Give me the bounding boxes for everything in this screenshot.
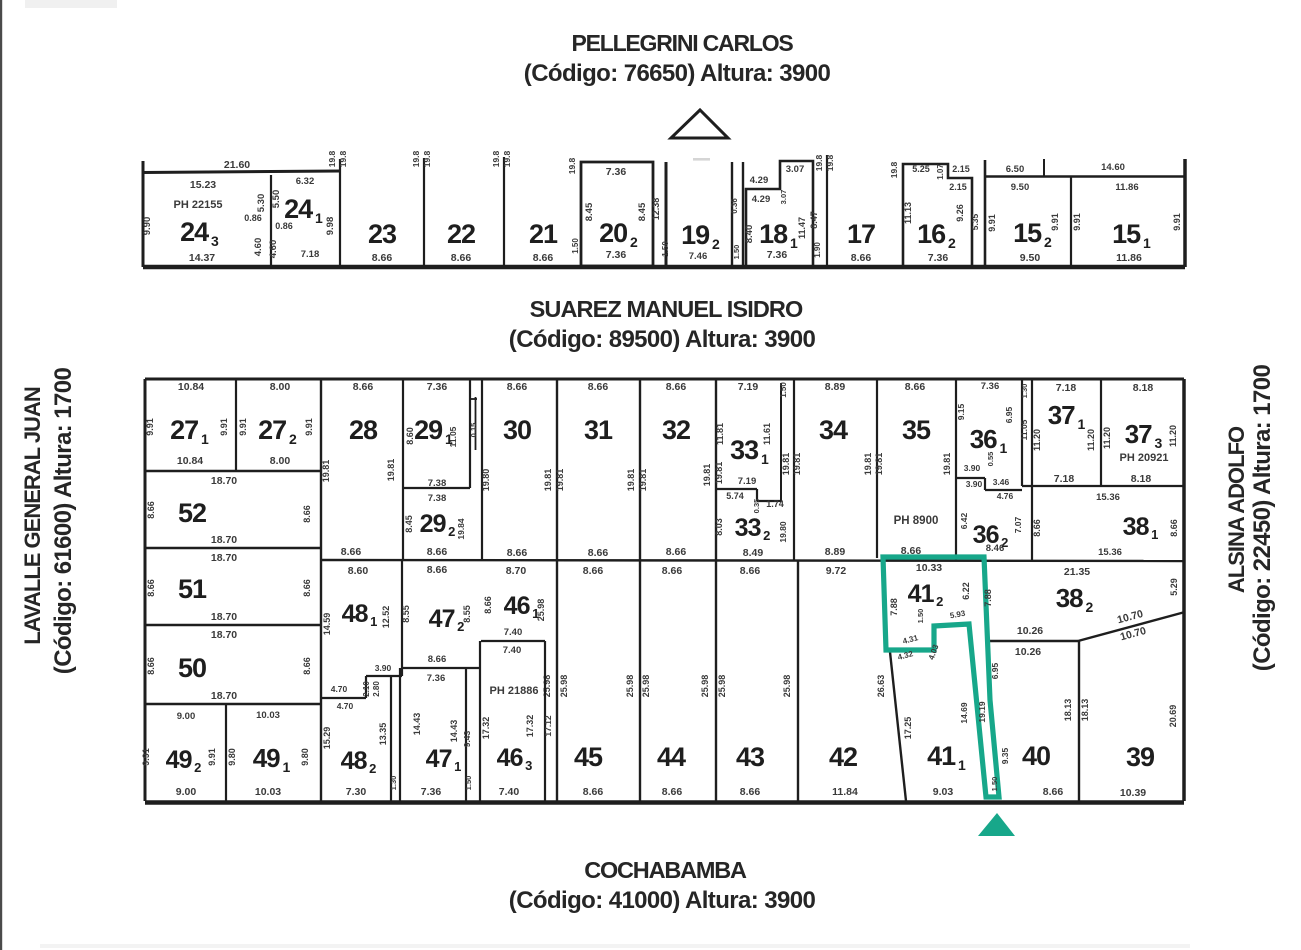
svg-text:5.74: 5.74	[726, 491, 744, 501]
svg-text:4.29: 4.29	[752, 194, 771, 205]
svg-text:LAVALLE GENERAL JUAN: LAVALLE GENERAL JUAN	[20, 387, 45, 645]
svg-text:1.50: 1.50	[916, 609, 925, 624]
svg-text:40: 40	[1022, 741, 1050, 771]
svg-text:9.50: 9.50	[1020, 252, 1041, 264]
svg-text:2.15: 2.15	[952, 164, 970, 174]
svg-text:6.32: 6.32	[296, 176, 315, 187]
svg-text:0.36: 0.36	[730, 198, 739, 214]
svg-text:9.35: 9.35	[1000, 747, 1010, 764]
svg-text:17.12: 17.12	[543, 715, 553, 737]
svg-text:2.80: 2.80	[372, 681, 381, 697]
svg-text:17: 17	[847, 219, 875, 249]
svg-text:19.81: 19.81	[874, 453, 884, 476]
svg-text:10.84: 10.84	[178, 381, 204, 393]
svg-text:9.91: 9.91	[238, 418, 248, 436]
svg-text:3.90: 3.90	[375, 663, 392, 673]
svg-text:8.55: 8.55	[462, 605, 472, 623]
svg-text:7.19: 7.19	[738, 381, 759, 393]
svg-text:15.36: 15.36	[1098, 547, 1122, 558]
svg-text:11.20: 11.20	[1168, 425, 1178, 447]
svg-text:19.81: 19.81	[714, 462, 724, 485]
svg-text:19.8: 19.8	[567, 157, 577, 174]
svg-text:26.63: 26.63	[876, 675, 886, 698]
svg-text:19.81: 19.81	[386, 459, 396, 482]
svg-text:19.8: 19.8	[411, 150, 421, 167]
svg-text:11.20: 11.20	[1086, 429, 1096, 451]
svg-text:18.70: 18.70	[211, 611, 237, 623]
svg-text:1.50: 1.50	[990, 777, 999, 792]
svg-text:19.8: 19.8	[491, 150, 501, 167]
svg-text:10.03: 10.03	[256, 710, 280, 721]
svg-text:4.70: 4.70	[337, 701, 354, 711]
svg-text:8.47: 8.47	[809, 211, 819, 229]
svg-text:4.60: 4.60	[268, 240, 279, 259]
svg-text:9.91: 9.91	[145, 418, 155, 436]
svg-text:0.86: 0.86	[244, 213, 262, 223]
svg-text:34: 34	[819, 415, 848, 445]
svg-text:8.66: 8.66	[427, 546, 448, 558]
svg-text:19.81: 19.81	[543, 469, 553, 492]
svg-text:4.60: 4.60	[253, 238, 264, 257]
svg-text:14.59: 14.59	[322, 613, 332, 636]
svg-text:19.8: 19.8	[338, 150, 348, 167]
svg-text:8.66: 8.66	[146, 501, 156, 519]
svg-text:19.8: 19.8	[422, 150, 432, 167]
svg-text:1.50: 1.50	[571, 238, 580, 254]
svg-text:19.81: 19.81	[942, 453, 952, 476]
svg-text:28: 28	[349, 415, 378, 445]
svg-text:4.76: 4.76	[997, 491, 1014, 501]
svg-text:8.00: 8.00	[270, 455, 291, 467]
svg-text:8.66: 8.66	[740, 786, 761, 798]
svg-text:8.45: 8.45	[584, 202, 595, 221]
svg-text:8.66: 8.66	[1169, 519, 1179, 537]
svg-text:19.81: 19.81	[792, 453, 802, 476]
svg-text:5.35: 5.35	[970, 213, 980, 230]
svg-text:1.30: 1.30	[1020, 384, 1029, 399]
svg-text:21: 21	[529, 219, 558, 249]
svg-text:COCHABAMBA: COCHABAMBA	[584, 857, 747, 883]
svg-text:7.36: 7.36	[427, 673, 446, 684]
svg-text:2.10: 2.10	[362, 681, 371, 697]
svg-text:(Código: 76650) Altura: 3900: (Código: 76650) Altura: 3900	[524, 60, 831, 87]
svg-text:35: 35	[902, 415, 931, 445]
svg-text:6.95: 6.95	[990, 662, 1000, 679]
svg-text:6.95: 6.95	[1004, 406, 1014, 423]
svg-text:5.30: 5.30	[256, 194, 267, 213]
svg-text:21.35: 21.35	[1064, 566, 1090, 578]
svg-text:52: 52	[178, 498, 206, 528]
svg-text:1.50: 1.50	[779, 382, 788, 398]
svg-text:19.81: 19.81	[781, 453, 791, 476]
svg-text:7.36: 7.36	[421, 786, 442, 798]
svg-text:9.00: 9.00	[176, 786, 197, 798]
svg-text:8.66: 8.66	[662, 786, 683, 798]
svg-text:PH 21886: PH 21886	[490, 685, 539, 697]
svg-text:23: 23	[368, 219, 397, 249]
svg-text:11.05: 11.05	[448, 426, 458, 447]
svg-text:1.30: 1.30	[389, 776, 398, 791]
svg-text:8.66: 8.66	[146, 579, 156, 597]
svg-text:9.91: 9.91	[304, 418, 314, 436]
svg-text:8.45: 8.45	[637, 202, 648, 221]
svg-text:8.66: 8.66	[851, 252, 872, 264]
svg-text:1.50: 1.50	[732, 245, 741, 260]
svg-text:9.26: 9.26	[955, 204, 965, 222]
svg-text:8.49: 8.49	[743, 547, 764, 559]
svg-text:PH 22155: PH 22155	[174, 199, 223, 211]
svg-text:39: 39	[1126, 742, 1155, 772]
svg-text:42: 42	[829, 742, 857, 772]
svg-text:9.91: 9.91	[987, 214, 997, 232]
svg-text:8.66: 8.66	[372, 252, 393, 264]
svg-text:8.66: 8.66	[588, 547, 609, 559]
svg-text:14.43: 14.43	[449, 720, 459, 743]
svg-text:10.03: 10.03	[255, 786, 281, 798]
svg-text:9.91: 9.91	[1172, 213, 1182, 231]
svg-text:5.29: 5.29	[1169, 578, 1179, 596]
svg-text:17.32: 17.32	[481, 717, 491, 740]
svg-text:8.89: 8.89	[825, 381, 846, 393]
svg-text:8.66: 8.66	[483, 596, 493, 614]
svg-text:9.91: 9.91	[1050, 213, 1060, 231]
svg-text:50: 50	[178, 653, 206, 683]
svg-text:11.86: 11.86	[1116, 252, 1142, 264]
svg-text:1.90: 1.90	[813, 242, 822, 258]
svg-text:9.91: 9.91	[207, 748, 217, 766]
svg-text:15.29: 15.29	[322, 727, 332, 750]
svg-text:25.98: 25.98	[717, 675, 727, 698]
svg-text:3.90: 3.90	[966, 479, 983, 489]
svg-text:(Código: 41000) Altura: 3900: (Código: 41000) Altura: 3900	[509, 887, 816, 914]
svg-text:7.19: 7.19	[738, 476, 757, 487]
svg-text:7.40: 7.40	[503, 645, 522, 656]
svg-text:8.66: 8.66	[905, 381, 926, 393]
svg-text:9.43: 9.43	[462, 730, 472, 747]
svg-text:19.8: 19.8	[327, 150, 337, 167]
svg-text:11.20: 11.20	[1032, 429, 1042, 451]
svg-text:6.50: 6.50	[1006, 164, 1025, 175]
svg-text:14.69: 14.69	[959, 702, 969, 724]
svg-text:6.42: 6.42	[959, 512, 969, 529]
svg-text:6.22: 6.22	[961, 582, 971, 600]
svg-text:51: 51	[178, 574, 207, 604]
svg-text:9.15: 9.15	[956, 403, 966, 420]
svg-text:8.66: 8.66	[533, 252, 554, 264]
svg-text:7.46: 7.46	[689, 251, 708, 262]
svg-text:8.18: 8.18	[1131, 473, 1152, 485]
svg-text:7.38: 7.38	[428, 493, 447, 504]
svg-text:7.36: 7.36	[606, 249, 627, 261]
svg-text:25.98: 25.98	[641, 675, 651, 698]
svg-text:25.98: 25.98	[625, 675, 635, 698]
svg-text:8.66: 8.66	[302, 505, 312, 523]
svg-text:(Código: 89500) Altura: 3900: (Código: 89500) Altura: 3900	[509, 326, 816, 353]
svg-text:7.18: 7.18	[1054, 473, 1075, 485]
svg-text:8.45: 8.45	[404, 515, 414, 533]
svg-text:18.70: 18.70	[211, 534, 237, 546]
svg-text:11.47: 11.47	[797, 217, 807, 239]
svg-text:9.98: 9.98	[325, 217, 336, 236]
svg-text:30: 30	[503, 415, 531, 445]
svg-text:8.89: 8.89	[825, 546, 846, 558]
svg-text:8.60: 8.60	[348, 565, 369, 577]
svg-text:18.13: 18.13	[1080, 699, 1090, 722]
svg-text:10.84: 10.84	[177, 455, 203, 467]
svg-text:5.25: 5.25	[912, 164, 930, 174]
svg-text:1.50: 1.50	[661, 241, 670, 257]
svg-text:9.91: 9.91	[219, 418, 229, 436]
svg-text:8.66: 8.66	[583, 565, 604, 577]
svg-text:7.40: 7.40	[504, 627, 523, 638]
svg-text:10.39: 10.39	[1120, 787, 1146, 799]
svg-text:8.66: 8.66	[1043, 786, 1064, 798]
svg-text:19.84: 19.84	[456, 518, 466, 540]
svg-text:7.36: 7.36	[928, 252, 949, 264]
svg-text:8.66: 8.66	[427, 564, 448, 576]
svg-text:8.66: 8.66	[583, 786, 604, 798]
svg-text:19.81: 19.81	[555, 469, 565, 492]
svg-text:45: 45	[574, 742, 603, 772]
svg-text:9.03: 9.03	[933, 786, 954, 798]
svg-text:9.50: 9.50	[1011, 182, 1030, 193]
svg-text:8.66: 8.66	[428, 654, 447, 665]
svg-text:8.66: 8.66	[302, 657, 312, 675]
svg-text:8.70: 8.70	[506, 565, 527, 577]
svg-text:SUAREZ MANUEL ISIDRO: SUAREZ MANUEL ISIDRO	[530, 296, 803, 322]
svg-text:18.70: 18.70	[211, 690, 237, 702]
svg-text:19.8: 19.8	[502, 150, 512, 167]
svg-text:11.05: 11.05	[1019, 419, 1029, 440]
svg-text:10.33: 10.33	[916, 562, 942, 574]
svg-text:PELLEGRINI CARLOS: PELLEGRINI CARLOS	[571, 30, 793, 56]
svg-text:8.66: 8.66	[451, 252, 472, 264]
svg-text:7.36: 7.36	[427, 381, 448, 393]
svg-text:11.81: 11.81	[715, 423, 725, 445]
svg-text:1.50: 1.50	[464, 776, 473, 791]
svg-text:PH 8900: PH 8900	[894, 515, 939, 527]
svg-text:8.66: 8.66	[507, 547, 528, 559]
svg-text:19.8: 19.8	[814, 154, 824, 171]
svg-text:2.15: 2.15	[949, 182, 967, 192]
svg-text:25.98: 25.98	[700, 675, 710, 698]
svg-text:18.70: 18.70	[211, 475, 237, 487]
svg-text:19.19: 19.19	[977, 701, 987, 723]
svg-text:8.46: 8.46	[986, 543, 1005, 554]
svg-text:11.13: 11.13	[903, 202, 913, 224]
svg-text:14.37: 14.37	[189, 252, 215, 264]
svg-text:43: 43	[736, 742, 765, 772]
svg-text:14.60: 14.60	[1101, 162, 1125, 173]
svg-text:8.66: 8.66	[1032, 519, 1042, 537]
svg-text:19.81: 19.81	[863, 453, 873, 476]
svg-text:9.80: 9.80	[227, 748, 237, 766]
svg-text:3.07: 3.07	[786, 164, 805, 175]
svg-text:19.8: 19.8	[825, 154, 835, 171]
svg-text:7.36: 7.36	[981, 381, 1000, 392]
svg-text:8.66: 8.66	[507, 381, 528, 393]
svg-text:20.69: 20.69	[1168, 705, 1178, 728]
svg-text:9.80: 9.80	[300, 748, 310, 766]
svg-text:31: 31	[584, 415, 613, 445]
svg-text:19.81: 19.81	[638, 469, 648, 492]
svg-text:22: 22	[447, 219, 475, 249]
svg-text:19.80: 19.80	[778, 521, 788, 543]
svg-text:PH 20921: PH 20921	[1120, 452, 1169, 464]
svg-text:19.81: 19.81	[321, 460, 331, 483]
svg-text:4.70: 4.70	[331, 684, 348, 694]
svg-text:8.66: 8.66	[341, 546, 362, 558]
svg-text:8.03: 8.03	[714, 518, 724, 536]
svg-text:7.36: 7.36	[606, 166, 627, 178]
svg-text:11.86: 11.86	[1115, 182, 1138, 193]
svg-text:8.66: 8.66	[146, 657, 156, 675]
svg-text:3.07: 3.07	[779, 190, 788, 205]
svg-text:ALSINA ADOLFO: ALSINA ADOLFO	[1224, 426, 1249, 593]
svg-text:9.72: 9.72	[826, 565, 847, 577]
svg-text:8.18: 8.18	[1133, 382, 1154, 394]
svg-text:8.66: 8.66	[353, 381, 374, 393]
svg-text:5.50: 5.50	[271, 190, 282, 209]
svg-text:25.98: 25.98	[559, 675, 569, 698]
svg-text:18.70: 18.70	[211, 552, 237, 564]
svg-text:7.40: 7.40	[499, 786, 520, 798]
svg-text:1.07: 1.07	[936, 164, 945, 180]
svg-text:44: 44	[657, 742, 686, 772]
svg-text:15.23: 15.23	[190, 179, 216, 191]
svg-text:18.70: 18.70	[211, 629, 237, 641]
svg-text:8.60: 8.60	[405, 427, 415, 445]
svg-text:7.18: 7.18	[301, 249, 320, 260]
svg-text:12.38: 12.38	[651, 198, 661, 221]
svg-text:0.35: 0.35	[752, 499, 761, 514]
svg-text:14.43: 14.43	[412, 713, 422, 736]
svg-text:7.30: 7.30	[346, 786, 367, 798]
svg-text:3.90: 3.90	[964, 463, 981, 473]
svg-text:7.36: 7.36	[767, 249, 788, 261]
svg-text:13.35: 13.35	[378, 723, 388, 746]
svg-text:7.88: 7.88	[983, 589, 993, 607]
svg-text:8.66: 8.66	[740, 565, 761, 577]
svg-text:25.98: 25.98	[782, 675, 792, 698]
svg-text:8.00: 8.00	[270, 381, 291, 393]
svg-text:(Código: 61600) Altura: 1700: (Código: 61600) Altura: 1700	[50, 368, 77, 675]
svg-text:19.80: 19.80	[481, 469, 491, 492]
svg-text:19.81: 19.81	[702, 464, 712, 487]
svg-text:8.40: 8.40	[744, 225, 755, 244]
svg-text:25.98: 25.98	[536, 599, 546, 622]
svg-text:12.52: 12.52	[381, 606, 391, 629]
svg-text:0.15: 0.15	[469, 423, 478, 438]
svg-text:25.98: 25.98	[542, 675, 552, 698]
svg-text:8.66: 8.66	[662, 565, 683, 577]
svg-text:9.91: 9.91	[141, 748, 151, 766]
svg-text:8.66: 8.66	[588, 381, 609, 393]
svg-text:8.55: 8.55	[401, 605, 411, 623]
svg-text:32: 32	[662, 415, 690, 445]
svg-text:9.90: 9.90	[142, 217, 153, 236]
svg-text:7.38: 7.38	[428, 478, 447, 489]
svg-text:11.84: 11.84	[832, 786, 858, 798]
svg-text:19.81: 19.81	[626, 469, 636, 492]
svg-text:1.74: 1.74	[766, 499, 784, 509]
svg-text:17.25: 17.25	[903, 717, 913, 740]
svg-text:10.26: 10.26	[1017, 625, 1043, 637]
svg-text:0.55: 0.55	[986, 452, 995, 467]
svg-text:9.00: 9.00	[177, 711, 196, 722]
svg-text:9.91: 9.91	[1072, 213, 1082, 231]
svg-text:3.46: 3.46	[993, 477, 1010, 487]
svg-text:11.61: 11.61	[762, 423, 772, 445]
svg-text:8.66: 8.66	[666, 546, 687, 558]
svg-text:(Código: 22450) Altura: 1700: (Código: 22450) Altura: 1700	[1249, 365, 1276, 672]
svg-text:7.18: 7.18	[1056, 382, 1077, 394]
svg-text:18.13: 18.13	[1063, 699, 1073, 722]
svg-text:4.29: 4.29	[750, 175, 769, 186]
svg-text:8.66: 8.66	[302, 579, 312, 597]
svg-text:21.60: 21.60	[224, 159, 250, 171]
svg-text:19.8: 19.8	[889, 161, 899, 178]
svg-text:11.20: 11.20	[1102, 427, 1112, 449]
svg-text:15.36: 15.36	[1096, 492, 1120, 503]
svg-text:10.26: 10.26	[1015, 646, 1041, 658]
svg-text:17.32: 17.32	[525, 715, 535, 738]
svg-text:7.88: 7.88	[889, 598, 899, 616]
svg-text:7.07: 7.07	[1013, 516, 1023, 533]
svg-text:8.66: 8.66	[666, 381, 687, 393]
